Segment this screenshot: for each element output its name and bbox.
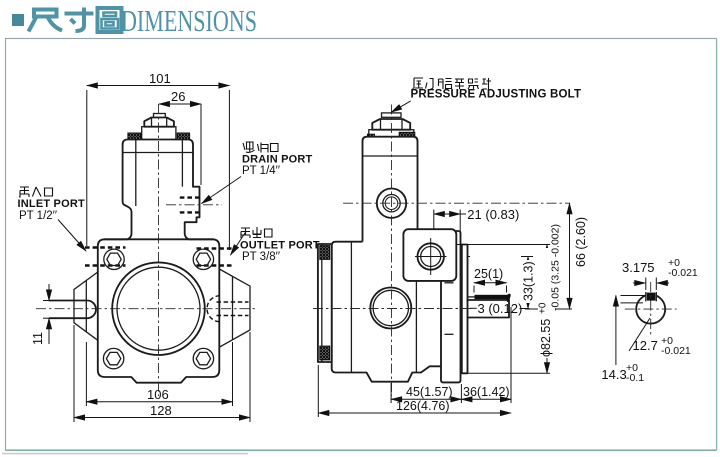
svg-text:45(1.57): 45(1.57) xyxy=(406,385,453,399)
svg-text:INLET PORT: INLET PORT xyxy=(18,198,85,210)
svg-text:-0.1: -0.1 xyxy=(626,372,644,384)
svg-text:12.7: 12.7 xyxy=(633,338,658,353)
svg-text:ϕ82.55: ϕ82.55 xyxy=(539,319,553,357)
svg-text:128: 128 xyxy=(150,403,172,418)
svg-text:126(4.76): 126(4.76) xyxy=(396,399,450,413)
svg-text:21 (0.83): 21 (0.83) xyxy=(467,207,519,222)
svg-text:-0.05 (3.25 -0.002): -0.05 (3.25 -0.002) xyxy=(550,224,562,311)
svg-text:26: 26 xyxy=(171,89,185,104)
svg-text:3 (0.12): 3 (0.12) xyxy=(478,301,523,316)
svg-text:101: 101 xyxy=(149,71,171,86)
svg-text:DRAIN PORT: DRAIN PORT xyxy=(242,154,313,166)
svg-text:-0.021: -0.021 xyxy=(668,267,698,279)
svg-text:PRESSURE ADJUSTING BOLT: PRESSURE ADJUSTING BOLT xyxy=(411,89,582,101)
svg-text:-0.021: -0.021 xyxy=(661,345,691,357)
svg-text:36(1.42): 36(1.42) xyxy=(463,385,510,399)
svg-text:33(1.3): 33(1.3) xyxy=(522,261,536,301)
svg-text:3.175: 3.175 xyxy=(622,260,655,275)
svg-text:DIMENSIONS: DIMENSIONS xyxy=(121,3,257,38)
svg-text:PT 1/4′′: PT 1/4′′ xyxy=(242,165,280,177)
svg-text:OUTLET PORT: OUTLET PORT xyxy=(240,240,320,252)
svg-text:PT 3/8′′: PT 3/8′′ xyxy=(242,251,280,263)
svg-text:11: 11 xyxy=(31,332,45,345)
svg-text:66 (2.60): 66 (2.60) xyxy=(574,217,588,267)
svg-text:14.3: 14.3 xyxy=(601,367,626,382)
svg-text:106: 106 xyxy=(147,387,169,402)
svg-text:+0: +0 xyxy=(538,302,549,314)
svg-text:25(1): 25(1) xyxy=(474,267,503,281)
svg-text:PT 1/2′′: PT 1/2′′ xyxy=(19,210,57,222)
